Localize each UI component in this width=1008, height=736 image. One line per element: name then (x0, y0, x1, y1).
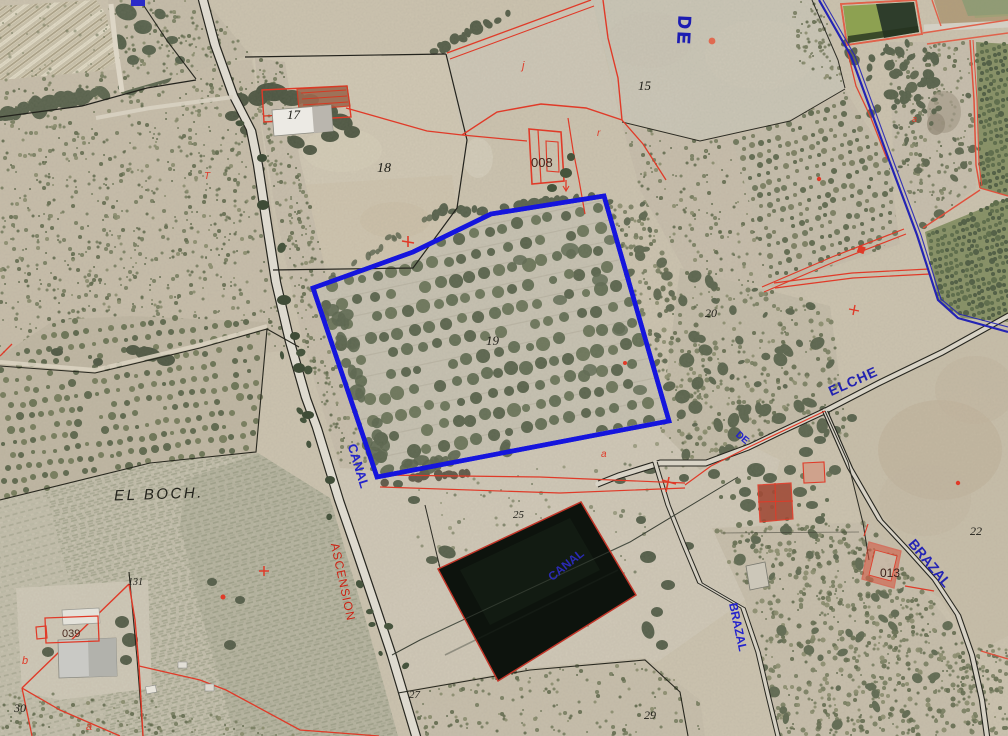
svg-text:22: 22 (970, 524, 982, 538)
svg-text:a: a (86, 721, 92, 733)
svg-text:a: a (601, 449, 607, 460)
svg-text:20: 20 (705, 306, 717, 320)
svg-text:25: 25 (513, 509, 525, 521)
svg-text:DE: DE (673, 15, 695, 47)
svg-text:17: 17 (287, 107, 301, 122)
svg-text:008: 008 (531, 155, 553, 170)
svg-text:131: 131 (128, 577, 143, 588)
svg-text:30: 30 (13, 701, 26, 715)
svg-text:27: 27 (409, 689, 421, 701)
svg-text:29: 29 (644, 708, 656, 722)
svg-text:039: 039 (62, 628, 80, 640)
svg-text:b: b (22, 655, 28, 667)
svg-text:a: a (912, 114, 917, 124)
svg-text:EL BOCH.: EL BOCH. (114, 484, 204, 504)
svg-text:T: T (204, 171, 211, 182)
svg-text:19: 19 (486, 333, 500, 348)
svg-text:013: 013 (880, 566, 900, 580)
svg-text:18: 18 (377, 161, 391, 176)
svg-text:15: 15 (638, 78, 652, 93)
